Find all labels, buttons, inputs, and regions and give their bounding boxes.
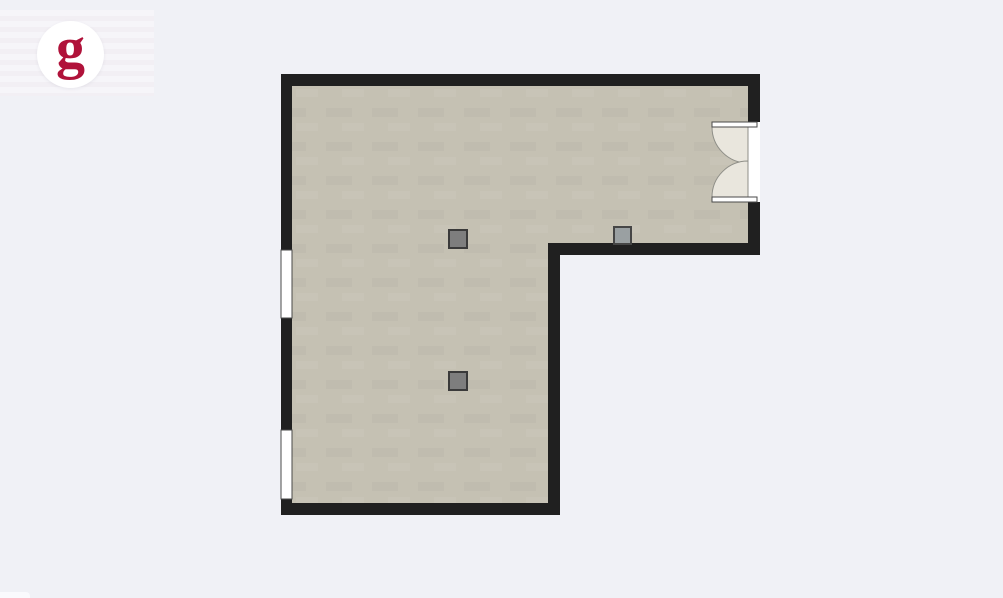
wall-fixture — [614, 227, 631, 244]
column-fixture — [449, 372, 467, 390]
door-leaf — [712, 122, 757, 127]
door-leaf — [712, 197, 757, 202]
floor-plan-canvas[interactable] — [0, 0, 1003, 598]
column-fixture — [449, 230, 467, 248]
window — [281, 430, 292, 499]
corner-sliver — [0, 592, 30, 598]
floor-texture — [292, 86, 748, 503]
window — [281, 250, 292, 318]
